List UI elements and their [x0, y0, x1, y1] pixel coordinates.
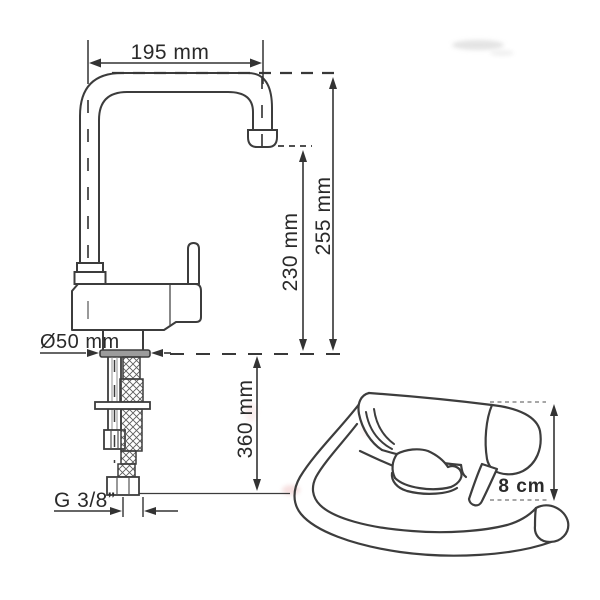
- arrowhead-right: [151, 349, 163, 357]
- folded-body-cylinder: [358, 393, 540, 477]
- joint-collar-upper: [77, 263, 103, 272]
- arrowhead-bottom: [329, 339, 337, 351]
- spout-tube: [80, 73, 277, 263]
- faucet-dimension-diagram: 195 mm 255 mm 230 mm 360 mm: [0, 0, 600, 600]
- arrowhead-top: [329, 77, 337, 89]
- faucet-body: [72, 284, 201, 330]
- arrowhead-left: [89, 59, 101, 68]
- joint-collar-lower: [75, 272, 106, 284]
- dim-total-height: 255 mm: [312, 77, 337, 351]
- dim-thread-label: G 3/8”: [54, 489, 115, 512]
- arrowhead-top: [253, 356, 261, 368]
- gray-smudge: [490, 50, 514, 56]
- gray-smudge: [452, 40, 504, 50]
- dim-folded-height-label: 8 cm: [498, 476, 545, 497]
- arrowhead-bottom: [299, 339, 307, 351]
- loop-end-cap: [535, 505, 568, 542]
- dim-under-counter-label: 360 mm: [234, 380, 257, 459]
- diagram-svg: 195 mm 255 mm 230 mm 360 mm: [0, 0, 600, 600]
- arrowhead-top: [299, 150, 307, 162]
- inset-folded-faucet: 8 cm: [295, 393, 569, 556]
- mounting-plate: [95, 402, 150, 409]
- dim-spout-height: 230 mm: [279, 150, 307, 351]
- dim-base-diameter-label: Ø50 mm: [40, 331, 120, 353]
- arrowhead-right: [250, 59, 262, 68]
- dim-spout-reach: 195 mm: [88, 40, 263, 84]
- arrowhead-top: [550, 404, 558, 416]
- arrowhead-bottom: [253, 479, 261, 491]
- hose-segment: [123, 357, 140, 379]
- arrowhead-right: [144, 507, 156, 515]
- dim-spout-height-label: 230 mm: [279, 213, 302, 292]
- dim-spout-reach-label: 195 mm: [131, 41, 210, 64]
- handle-lever: [188, 243, 199, 284]
- loop-upper-edge: [507, 508, 536, 525]
- hose-segment: [118, 464, 135, 477]
- arrowhead-bottom: [550, 489, 558, 501]
- spout-inner-edge: [99, 92, 253, 263]
- hose-segment: [120, 379, 143, 402]
- hose-segment: [121, 409, 142, 451]
- extension-lines: [123, 497, 143, 517]
- pipe-joint: [75, 263, 106, 284]
- hose-segment: [121, 451, 136, 464]
- dim-under-counter: 360 mm: [234, 356, 261, 491]
- dim-total-height-label: 255 mm: [312, 177, 335, 256]
- spout-outer-edge: [80, 73, 272, 263]
